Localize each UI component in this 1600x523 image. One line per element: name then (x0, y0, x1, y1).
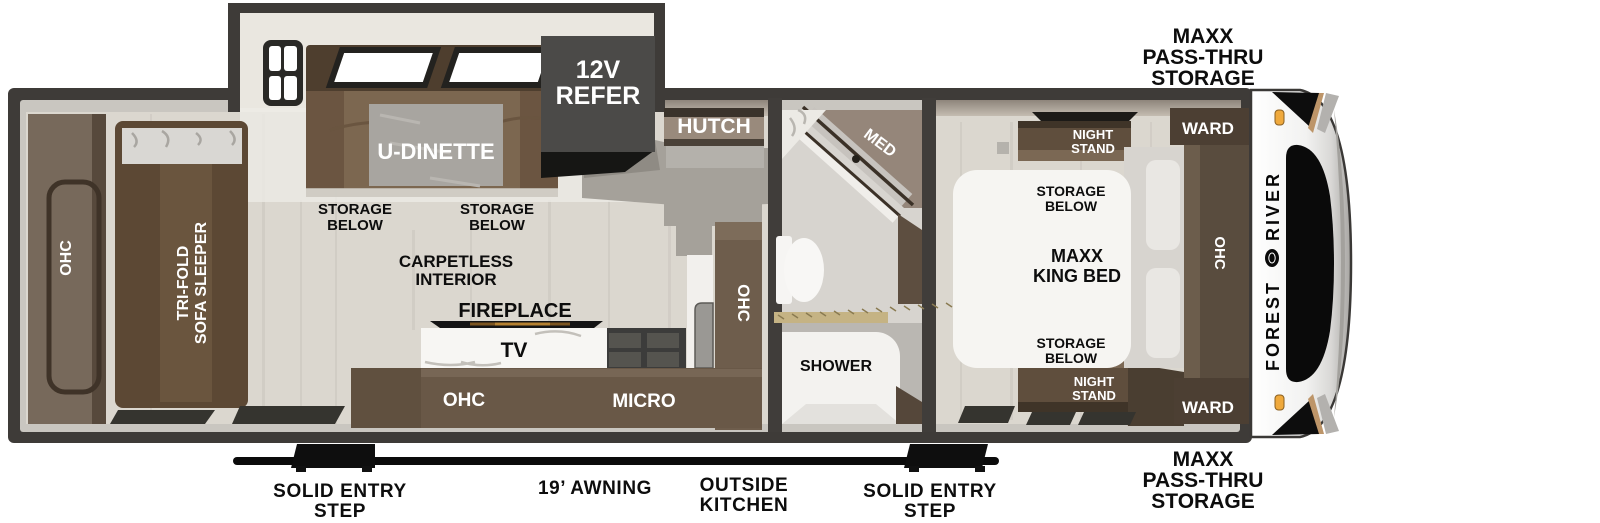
svg-text:TRI-FOLD: TRI-FOLD (175, 246, 192, 321)
svg-text:BELOW: BELOW (1045, 198, 1098, 214)
svg-text:STEP: STEP (314, 501, 366, 522)
svg-text:PASS-THRU: PASS-THRU (1143, 469, 1264, 492)
svg-text:U-DINETTE: U-DINETTE (377, 139, 494, 164)
svg-text:BELOW: BELOW (469, 217, 526, 234)
svg-text:MICRO: MICRO (612, 391, 675, 412)
svg-text:STORAGE: STORAGE (1037, 335, 1106, 351)
svg-text:SHOWER: SHOWER (800, 358, 872, 375)
svg-text:KITCHEN: KITCHEN (700, 495, 789, 516)
svg-text:NIGHT: NIGHT (1073, 127, 1114, 142)
svg-text:NIGHT: NIGHT (1074, 374, 1115, 389)
svg-text:KING BED: KING BED (1033, 266, 1121, 286)
svg-text:TV: TV (501, 339, 528, 362)
svg-text:12V: 12V (576, 56, 621, 84)
svg-text:OHC: OHC (1211, 236, 1228, 270)
svg-text:STAND: STAND (1071, 141, 1115, 156)
svg-text:STORAGE: STORAGE (1151, 490, 1254, 513)
svg-text:STORAGE: STORAGE (1037, 183, 1106, 199)
svg-text:FOREST: FOREST (1263, 280, 1283, 371)
svg-text:INTERIOR: INTERIOR (415, 270, 496, 289)
svg-text:BELOW: BELOW (1045, 350, 1098, 366)
svg-text:BELOW: BELOW (327, 217, 384, 234)
svg-text:OUTSIDE: OUTSIDE (700, 475, 789, 496)
svg-text:WARD: WARD (1182, 119, 1234, 138)
svg-text:MAXX: MAXX (1173, 25, 1234, 48)
svg-text:OHC: OHC (734, 284, 753, 322)
svg-text:SOLID ENTRY: SOLID ENTRY (273, 481, 407, 502)
svg-text:CARPETLESS: CARPETLESS (399, 252, 513, 271)
svg-text:OHC: OHC (58, 240, 75, 276)
svg-text:HUTCH: HUTCH (677, 115, 751, 138)
svg-text:REFER: REFER (556, 82, 641, 110)
svg-text:SOFA SLEEPER: SOFA SLEEPER (193, 222, 210, 345)
svg-text:MAXX: MAXX (1173, 448, 1234, 471)
svg-text:FIREPLACE: FIREPLACE (458, 300, 571, 322)
svg-text:STORAGE: STORAGE (1151, 67, 1254, 90)
svg-text:WARD: WARD (1182, 398, 1234, 417)
svg-text:SOLID ENTRY: SOLID ENTRY (863, 481, 997, 502)
svg-text:STORAGE: STORAGE (318, 201, 392, 218)
svg-text:19’ AWNING: 19’ AWNING (538, 478, 652, 499)
svg-text:STAND: STAND (1072, 388, 1116, 403)
svg-text:MAXX: MAXX (1051, 246, 1103, 266)
svg-text:PASS-THRU: PASS-THRU (1143, 46, 1264, 69)
svg-text:STORAGE: STORAGE (460, 201, 534, 218)
svg-text:STEP: STEP (904, 501, 956, 522)
svg-text:OHC: OHC (443, 390, 486, 411)
svg-text:RIVER: RIVER (1263, 171, 1283, 241)
